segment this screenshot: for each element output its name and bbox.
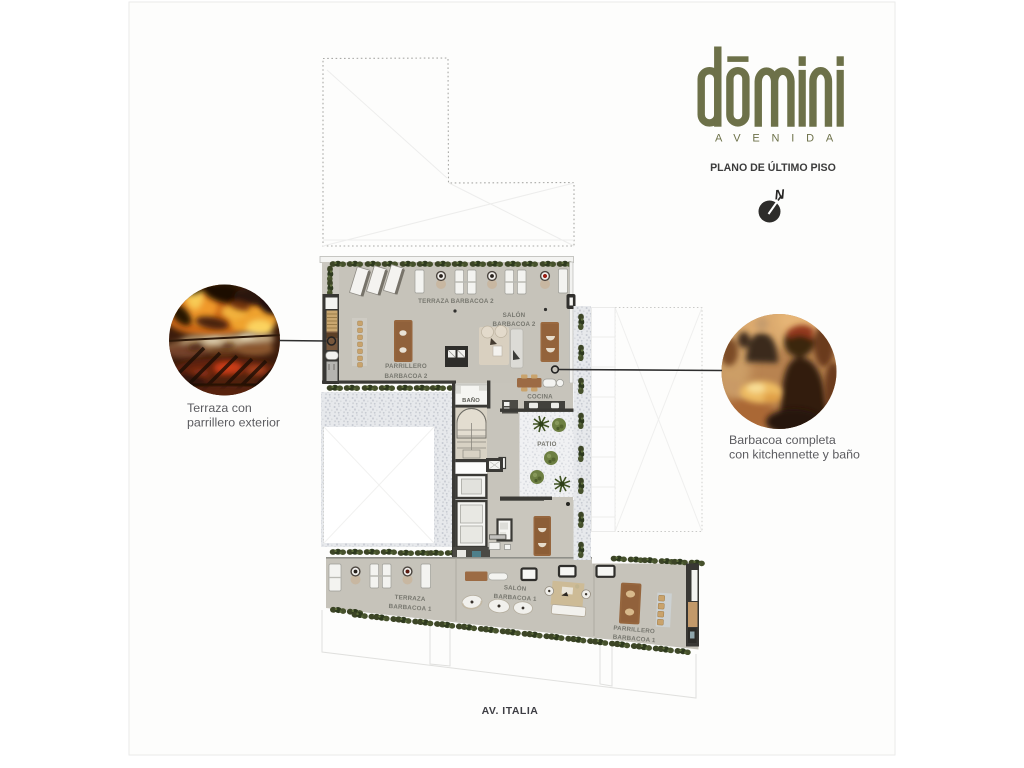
svg-text:parrillero exterior: parrillero exterior	[187, 416, 280, 430]
svg-text:PLANO DE ÚLTIMO PISO: PLANO DE ÚLTIMO PISO	[710, 161, 836, 174]
svg-text:BAÑO: BAÑO	[462, 397, 480, 404]
svg-text:TERRAZA BARBACOA 2: TERRAZA BARBACOA 2	[418, 298, 494, 305]
svg-text:Terraza con: Terraza con	[187, 401, 252, 415]
svg-text:BARBACOA 2: BARBACOA 2	[384, 373, 427, 380]
svg-text:SALÓN: SALÓN	[503, 311, 526, 319]
svg-text:Barbacoa completa: Barbacoa completa	[729, 433, 836, 447]
svg-text:AVENIDA: AVENIDA	[715, 133, 845, 145]
svg-text:PARRILLERO: PARRILLERO	[385, 363, 427, 370]
svg-text:COCINA: COCINA	[527, 394, 553, 401]
svg-text:N: N	[774, 187, 786, 203]
svg-text:con kitchennette y baño: con kitchennette y baño	[729, 448, 860, 462]
svg-text:PATIO: PATIO	[537, 441, 557, 448]
svg-text:AV. ITALIA: AV. ITALIA	[482, 705, 539, 717]
svg-text:SALÓN: SALÓN	[504, 583, 527, 593]
